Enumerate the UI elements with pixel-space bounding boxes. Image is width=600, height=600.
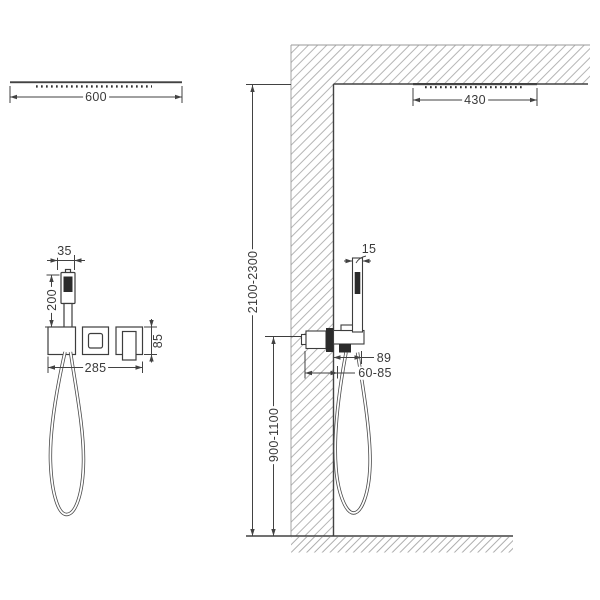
mixer-front-view — [48, 270, 143, 515]
valve-body — [306, 331, 326, 349]
installation-diagram: 600 35 200 285 85 430 2100-2300 900-1100… — [0, 0, 600, 600]
floor-hatch — [291, 537, 513, 553]
ceiling-shower-plate — [413, 83, 537, 85]
handshower-side — [353, 258, 363, 332]
handshower-face — [64, 277, 73, 293]
dim-label-handshower-length: 200 — [45, 287, 58, 313]
dim-label-embed-depth: 60-85 — [356, 367, 393, 380]
ceiling-hatch — [334, 45, 591, 84]
hose-front-inner — [50, 352, 83, 515]
valve-back — [302, 335, 307, 345]
dim-label-ceiling-shower-width: 430 — [462, 94, 488, 107]
wall-section — [246, 45, 590, 553]
mixer-lever — [123, 332, 137, 361]
hose-front — [50, 352, 83, 515]
dim-label-handshower-depth: 15 — [360, 243, 379, 256]
diverter-knob — [89, 334, 103, 349]
dim-label-trim-width: 285 — [83, 361, 109, 374]
wall-hatch — [291, 45, 334, 537]
dim-label-wall-offset: 89 — [375, 351, 394, 364]
dim-label-trim-height: 85 — [152, 331, 165, 350]
handshower-handle — [64, 304, 72, 329]
hose-clamp — [339, 344, 351, 353]
shower-plate — [10, 81, 182, 83]
holder-top — [341, 325, 353, 331]
dim-label-ceiling-height: 2100-2300 — [246, 249, 259, 315]
holder-plate — [48, 327, 76, 355]
valve-wall-pass — [326, 328, 334, 352]
dim-label-overhead-width: 600 — [83, 91, 109, 104]
handshower-side-face — [355, 272, 361, 294]
dim-label-handshower-width: 35 — [55, 245, 74, 258]
dim-label-mixer-height: 900-1100 — [267, 406, 280, 464]
